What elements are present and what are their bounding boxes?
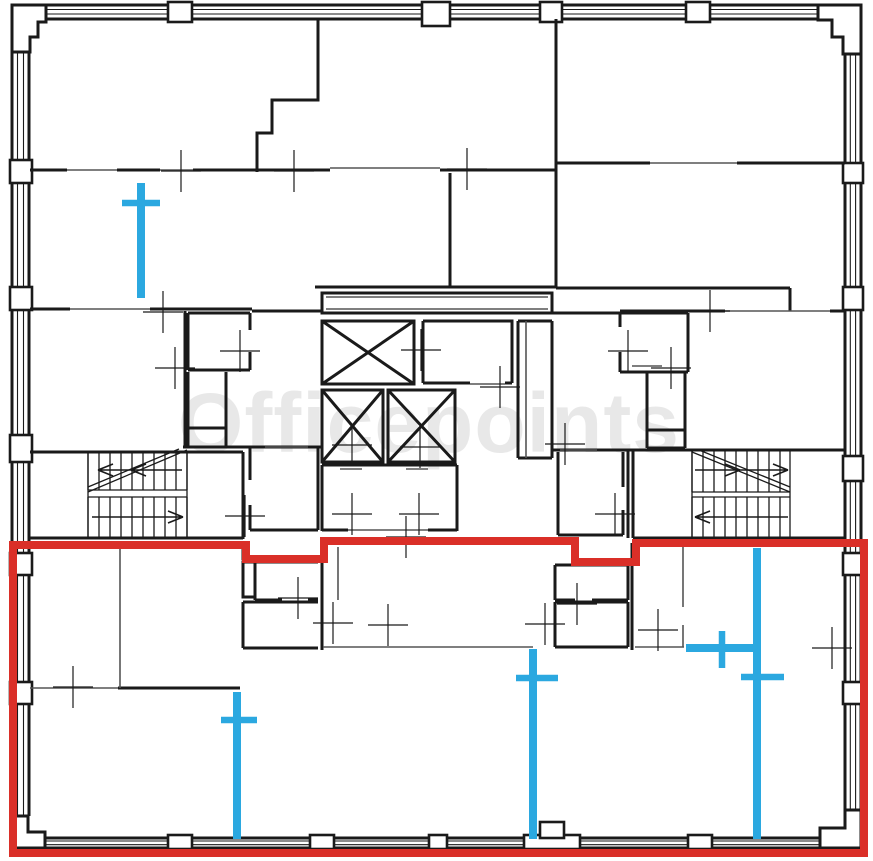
dimension-tick [447, 148, 487, 190]
marker-3 [516, 649, 558, 839]
floor-plan-drawing: Officepoints [0, 0, 873, 861]
floor-plan: Officepoints [0, 0, 873, 861]
interior-walls [30, 19, 845, 688]
dimension-tick [313, 602, 353, 644]
dimension-tick [161, 150, 201, 192]
dimension-tick [690, 290, 730, 332]
marker-1 [122, 183, 160, 298]
marker-5 [686, 631, 753, 668]
dimension-tick [143, 291, 183, 333]
dimension-tick [557, 583, 597, 625]
stair-direction-arrows [92, 464, 788, 523]
marker-4 [741, 548, 784, 839]
stair-break-line-right [692, 450, 790, 492]
dimension-tick [401, 329, 441, 371]
dimension-tick [274, 150, 314, 192]
dimension-tick [53, 666, 93, 708]
marker-2 [221, 692, 257, 839]
dimension-tick [278, 577, 318, 619]
dimension-tick [525, 603, 565, 645]
dimension-tick [220, 330, 260, 372]
dimension-tick [368, 604, 408, 646]
dimension-tick [638, 609, 678, 651]
proposed-partition-markers [122, 183, 784, 839]
selected-unit-outline [13, 541, 864, 853]
